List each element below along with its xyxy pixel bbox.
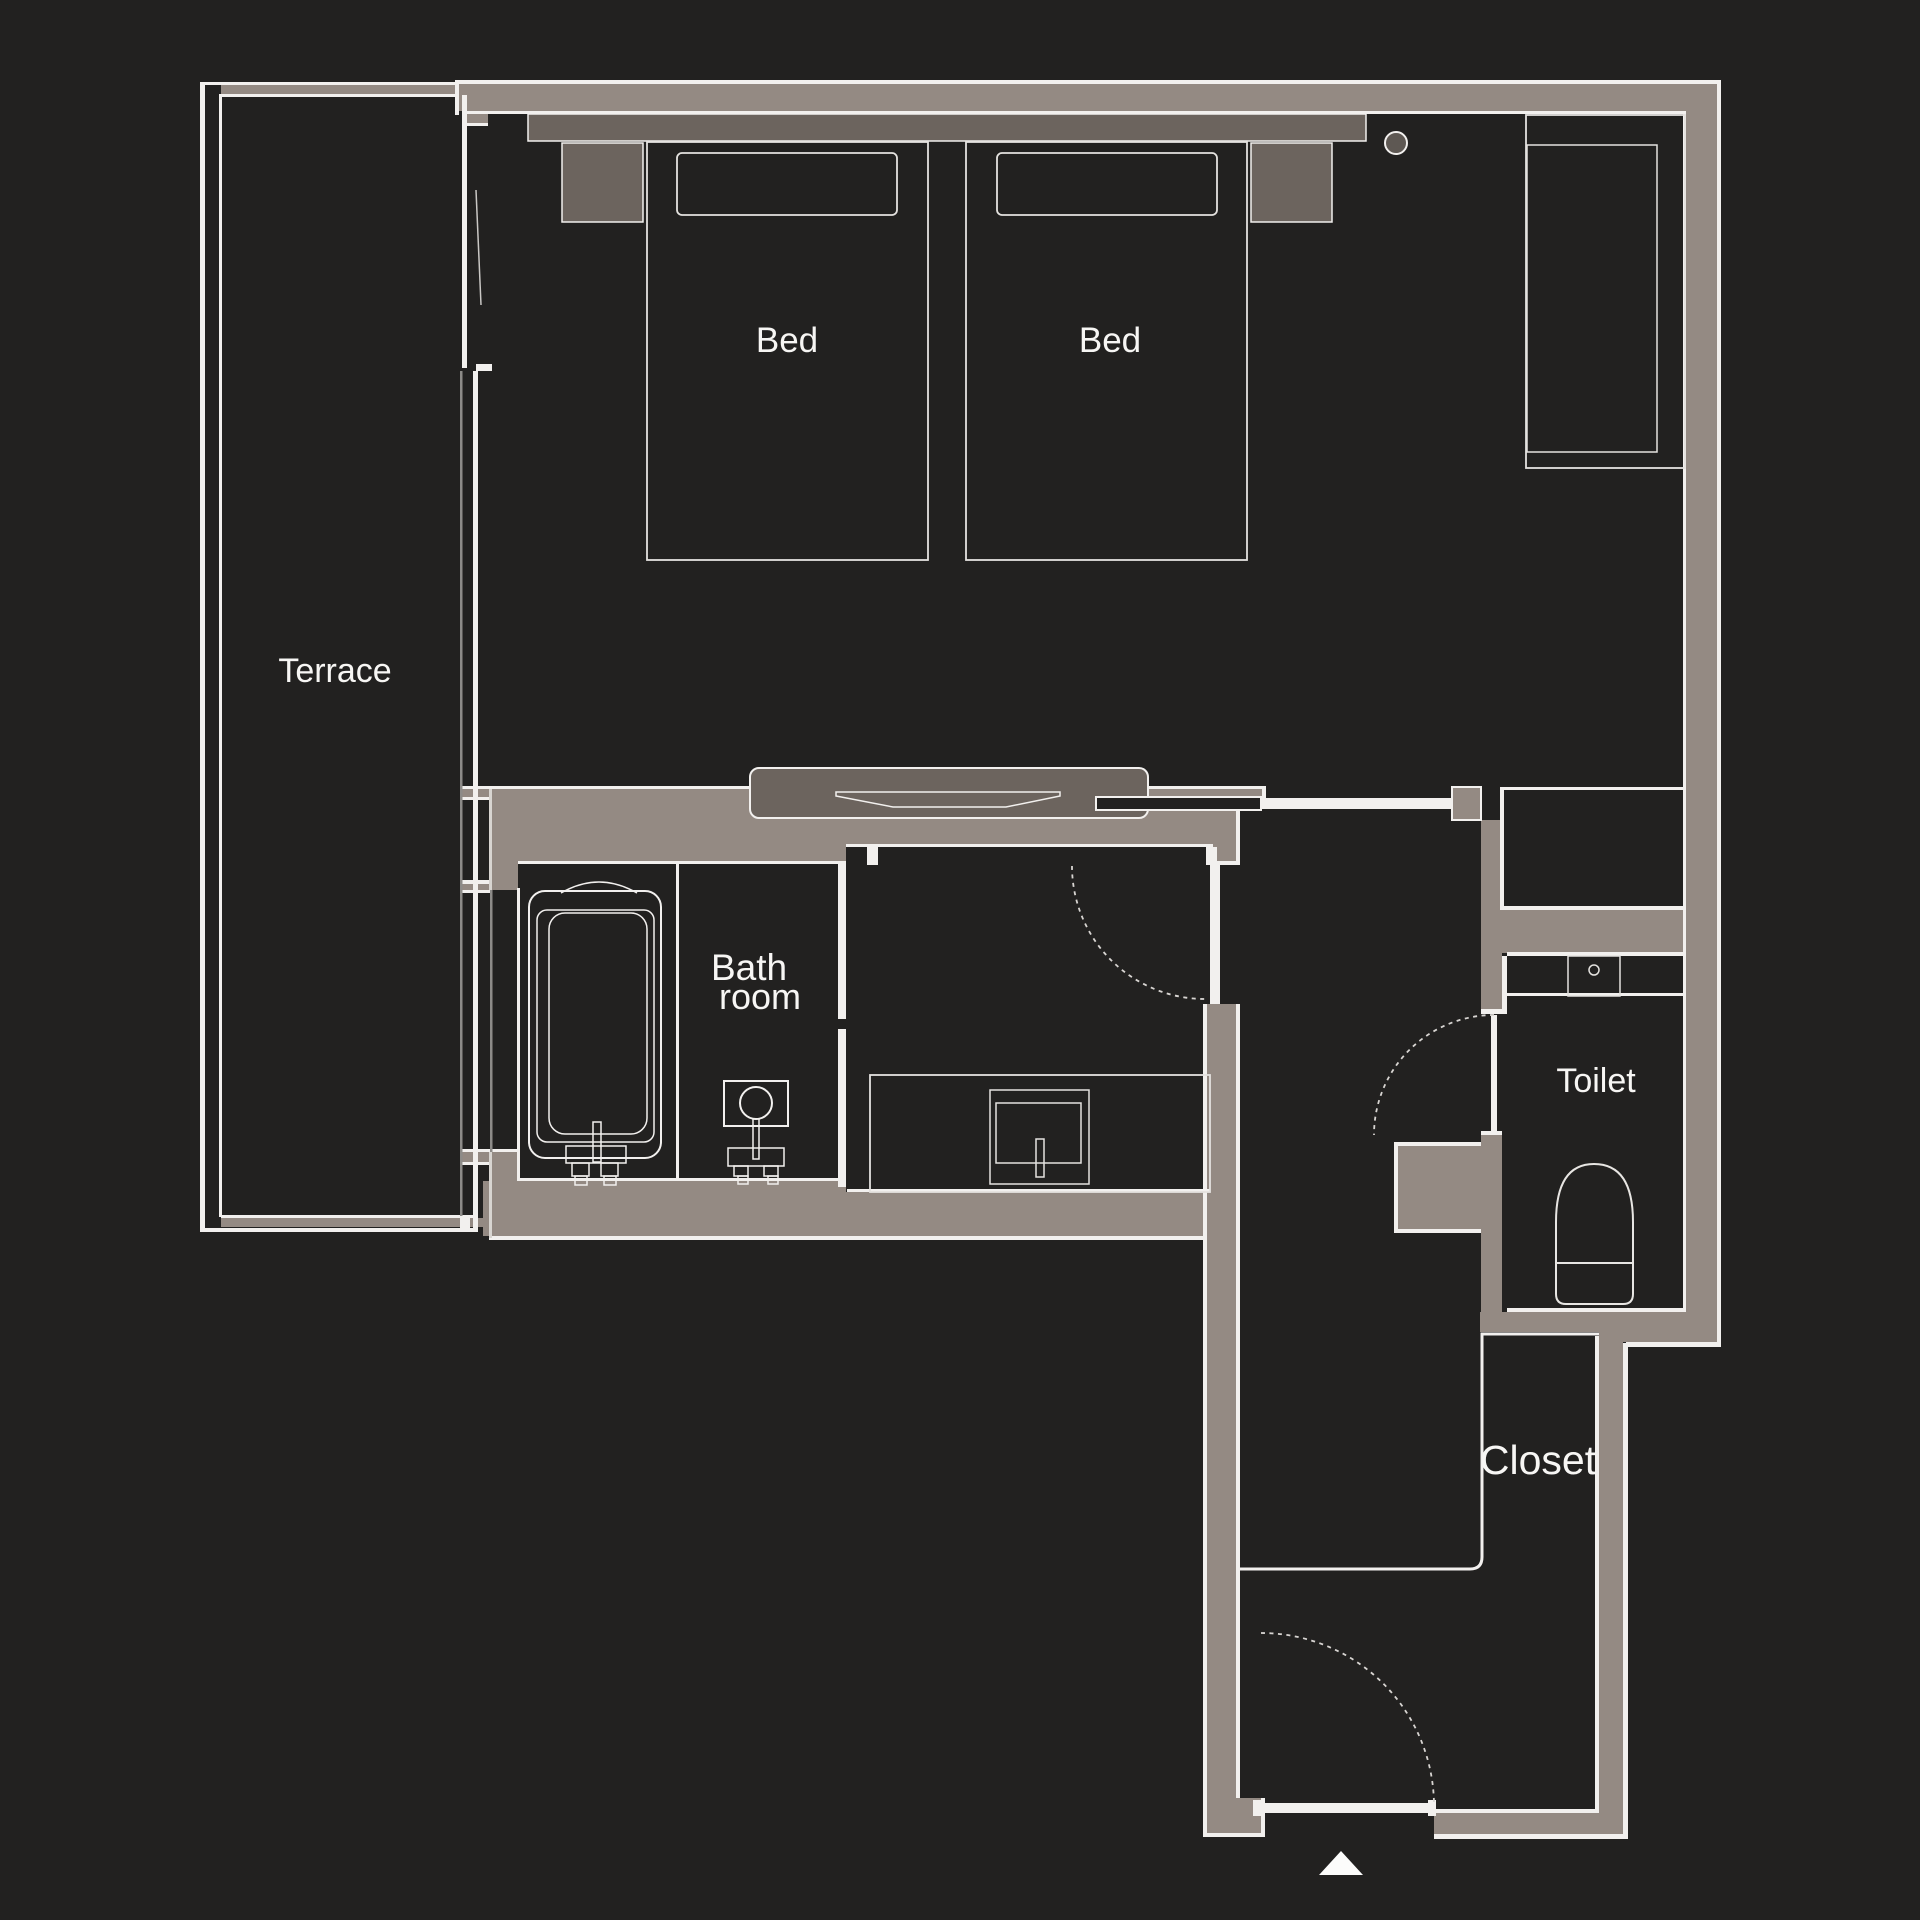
svg-text:Bed: Bed — [756, 321, 818, 360]
svg-text:Closet: Closet — [1480, 1437, 1597, 1483]
svg-text:Toilet: Toilet — [1556, 1062, 1636, 1100]
svg-text:Bed: Bed — [1079, 321, 1141, 360]
svg-text:Terrace: Terrace — [278, 652, 391, 690]
svg-text:room: room — [719, 976, 801, 1017]
